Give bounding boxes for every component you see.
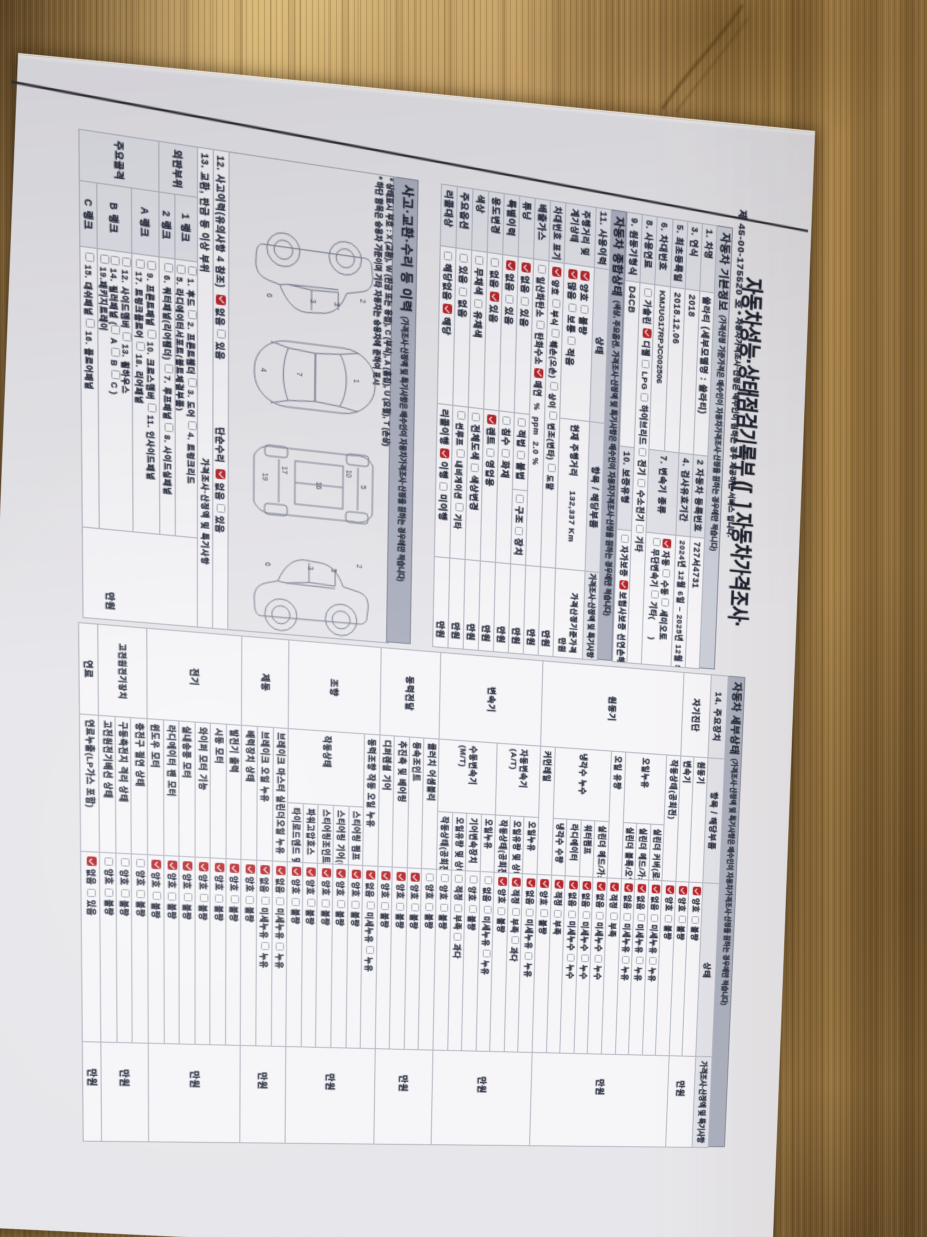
svg-text:17: 17	[280, 466, 287, 475]
svg-text:3: 3	[332, 302, 339, 307]
svg-text:5: 5	[359, 485, 366, 490]
svg-text:2: 2	[355, 564, 362, 569]
svg-text:4: 4	[259, 367, 266, 372]
svg-text:3: 3	[306, 566, 313, 571]
svg-text:16: 16	[314, 481, 321, 490]
svg-text:1: 1	[352, 379, 359, 384]
svg-text:3: 3	[329, 568, 336, 573]
svg-text:2: 2	[358, 299, 365, 304]
svg-text:6: 6	[265, 293, 272, 298]
svg-text:10: 10	[344, 470, 351, 479]
svg-text:7: 7	[295, 372, 302, 377]
svg-text:6: 6	[263, 562, 270, 567]
svg-text:3: 3	[308, 299, 315, 304]
svg-text:19: 19	[260, 472, 267, 481]
